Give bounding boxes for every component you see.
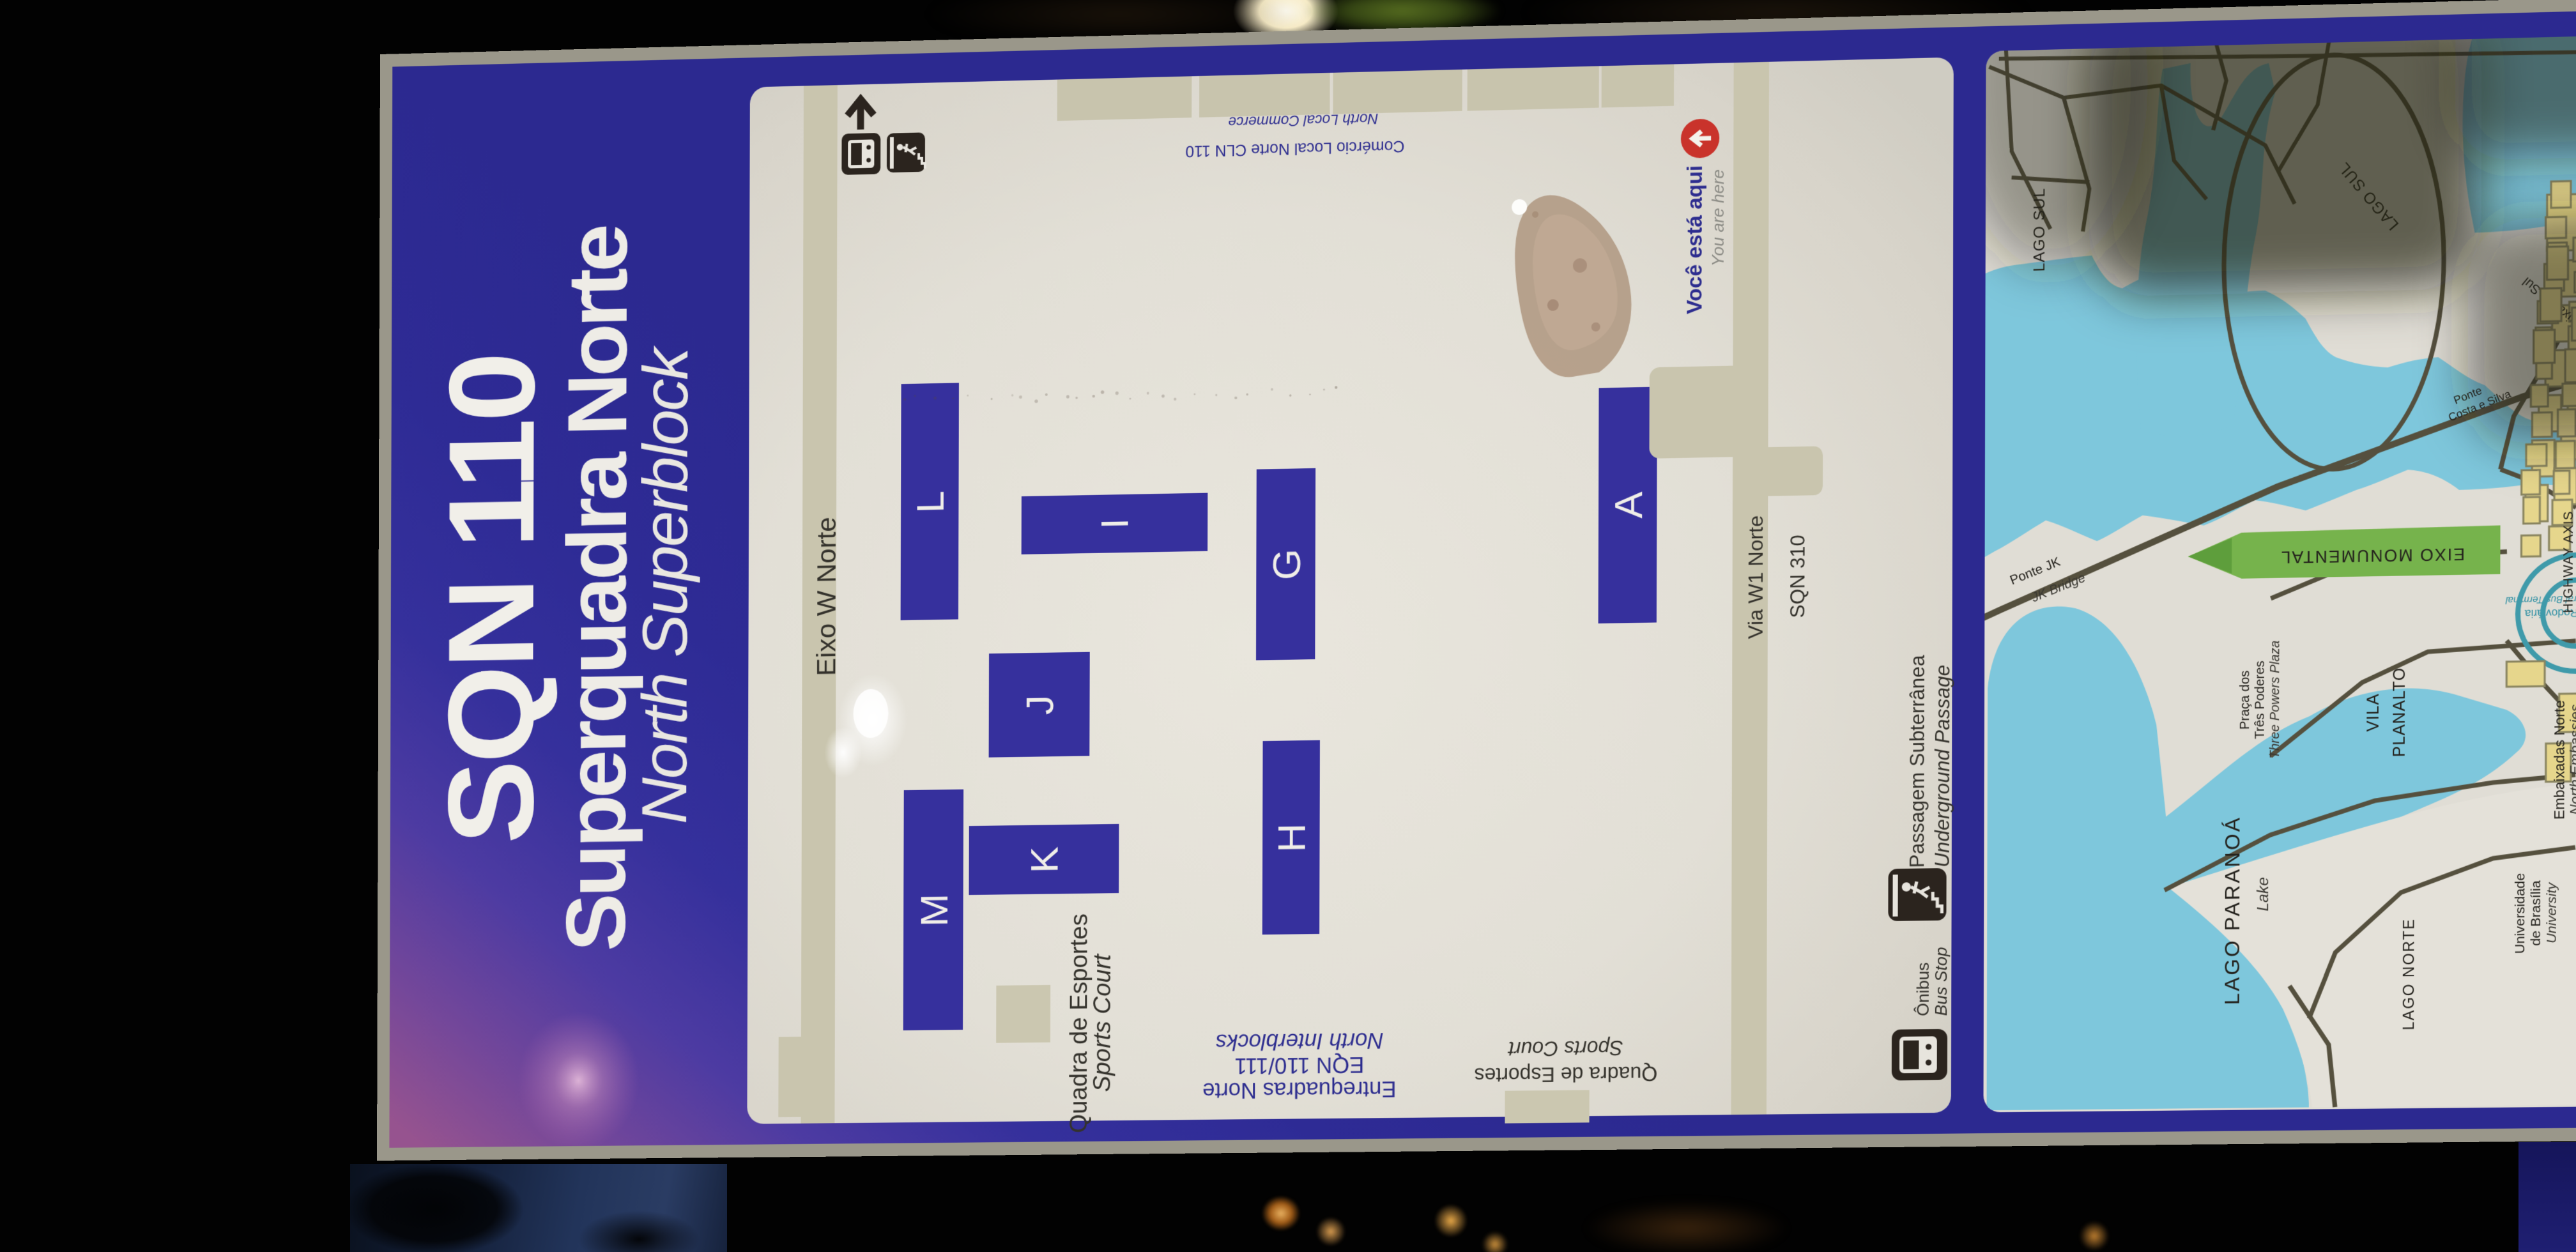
- svg-text:G: G: [1264, 549, 1308, 581]
- svg-text:LAGO PARANOÁ: LAGO PARANOÁ: [2221, 816, 2244, 1005]
- svg-text:SQN 110: SQN 110: [422, 354, 560, 845]
- svg-text:North Superblock: North Superblock: [629, 344, 701, 825]
- svg-text:EIXO MONUMENTAL: EIXO MONUMENTAL: [2280, 544, 2465, 566]
- svg-text:Passagem Subterrânea: Passagem Subterrânea: [1906, 655, 1929, 868]
- svg-text:J: J: [1018, 695, 1061, 715]
- svg-text:K: K: [1022, 846, 1066, 874]
- svg-text:Três Poderes: Três Poderes: [2253, 660, 2267, 739]
- svg-text:HIGHWAY AXIS: HIGHWAY AXIS: [2561, 510, 2576, 613]
- svg-text:Sports Court: Sports Court: [1508, 1036, 1623, 1060]
- svg-text:Ônibus: Ônibus: [1913, 962, 1933, 1016]
- svg-text:Embaixadas Norte: Embaixadas Norte: [2550, 700, 2568, 820]
- svg-text:A: A: [1606, 491, 1651, 519]
- svg-text:North Interblocks: North Interblocks: [1216, 1028, 1384, 1055]
- svg-text:H: H: [1269, 823, 1314, 852]
- svg-text:Quadra de Esportes: Quadra de Esportes: [1474, 1062, 1657, 1087]
- svg-text:Entrequadras Norte: Entrequadras Norte: [1202, 1076, 1397, 1103]
- svg-text:de Brasília: de Brasília: [2528, 880, 2543, 946]
- svg-text:Sports Court: Sports Court: [1088, 953, 1115, 1092]
- svg-text:SQN 310: SQN 310: [1787, 535, 1809, 618]
- svg-text:Universidade: Universidade: [2512, 873, 2527, 954]
- svg-text:Eixo W Norte: Eixo W Norte: [811, 517, 841, 676]
- svg-text:You are here: You are here: [1709, 169, 1728, 267]
- svg-text:VILA: VILA: [2365, 693, 2382, 731]
- svg-text:L: L: [908, 491, 952, 514]
- svg-text:University: University: [2544, 882, 2559, 943]
- svg-text:North Embassies: North Embassies: [2566, 704, 2576, 815]
- svg-text:Underground Passage: Underground Passage: [1931, 664, 1954, 867]
- svg-text:Praça dos: Praça dos: [2237, 670, 2252, 729]
- svg-text:Three Powers Plaza: Three Powers Plaza: [2267, 640, 2282, 759]
- svg-text:M: M: [912, 893, 956, 927]
- svg-text:Bus Stop: Bus Stop: [1932, 947, 1951, 1016]
- svg-text:EQN 110/111: EQN 110/111: [1234, 1052, 1364, 1078]
- svg-text:Lake: Lake: [2254, 877, 2271, 912]
- svg-text:Você está aqui: Você está aqui: [1683, 165, 1706, 314]
- svg-text:I: I: [1092, 517, 1137, 530]
- svg-text:PLANALTO: PLANALTO: [2391, 667, 2409, 757]
- svg-text:Via W1 Norte: Via W1 Norte: [1744, 515, 1767, 639]
- svg-text:LAGO NORTE: LAGO NORTE: [2400, 918, 2418, 1030]
